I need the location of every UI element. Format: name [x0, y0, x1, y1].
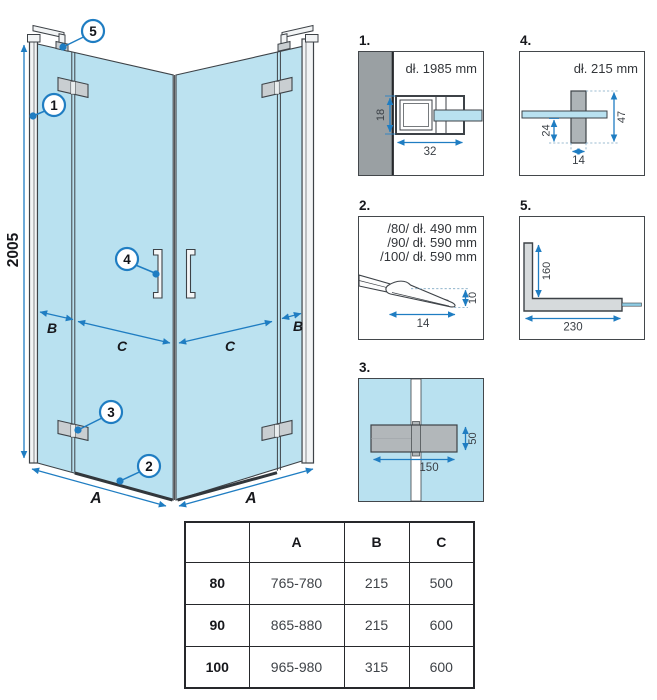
- callout-5-number: 5: [89, 24, 97, 39]
- detail-2-size-90: /90/ dł. 590 mm: [387, 235, 477, 250]
- shower-enclosure-diagram: 2005 B C C B A A: [0, 0, 350, 520]
- table-header-c: C: [409, 522, 474, 562]
- wall-profile-right: [302, 39, 314, 463]
- value-cell: 965-980: [249, 646, 344, 688]
- callout-1-number: 1: [50, 98, 58, 113]
- detail-4-dim-offset: 24: [541, 124, 553, 136]
- value-cell: 865-880: [249, 604, 344, 646]
- detail-3-box: 150 50: [358, 378, 484, 502]
- dim-a-right-label: A: [244, 490, 256, 507]
- detail-panel-4: 4. dł. 215 mm 47 24 14: [519, 33, 645, 176]
- detail-4-box: dł. 215 mm 47 24 14: [519, 51, 645, 176]
- value-cell: 600: [409, 646, 474, 688]
- table-header-row: A B C: [185, 522, 474, 562]
- size-table: A B C 80 765-780 215 500 90 865-880 215 …: [184, 521, 475, 689]
- detail-5-label: 5.: [519, 198, 645, 216]
- detail-3-dim-height: 50: [467, 432, 479, 444]
- detail-1-label: 1.: [358, 33, 484, 51]
- size-cell: 90: [185, 604, 249, 646]
- detail-5-dim-horizontal: 230: [563, 322, 582, 334]
- callout-3-number: 3: [107, 405, 115, 420]
- detail-5-dim-vertical: 160: [541, 262, 553, 280]
- detail-2-label: 2.: [358, 198, 484, 216]
- detail-4-dim-width: 14: [572, 155, 585, 167]
- dim-height: 2005: [5, 45, 24, 458]
- detail-3-dim-width: 150: [419, 462, 438, 474]
- detail-2-dim-height: 10: [467, 292, 479, 304]
- detail-2-size-100: /100/ dł. 590 mm: [380, 249, 477, 264]
- glass-edge: [622, 303, 642, 306]
- callout-5: 5: [59, 20, 104, 51]
- detail-2-dim-width: 14: [417, 318, 430, 330]
- dim-c-right-label: C: [225, 338, 236, 354]
- detail-3-label: 3.: [358, 360, 484, 378]
- detail-4-title: dł. 215 mm: [574, 61, 638, 76]
- glass-holder-drawing: dł. 215 mm 47 24 14: [520, 52, 644, 175]
- detail-2-size-80: /80/ dł. 490 mm: [387, 221, 477, 236]
- table-row: 90 865-880 215 600: [185, 604, 474, 646]
- detail-4-dim-height: 47: [616, 111, 628, 123]
- table-header-size: [185, 522, 249, 562]
- value-cell: 215: [344, 604, 409, 646]
- value-cell: 765-780: [249, 562, 344, 604]
- detail-1-title: dł. 1985 mm: [405, 61, 477, 76]
- detail-panel-3: 3. 150 50: [358, 360, 484, 502]
- seal-lip: [386, 281, 455, 307]
- glass-section: [434, 110, 482, 121]
- detail-1-box: dł. 1985 mm 18 32: [358, 51, 484, 176]
- dim-a-left-label: A: [89, 490, 101, 507]
- callout-2-number: 2: [145, 459, 153, 474]
- hinge-detail-drawing: 150 50: [359, 379, 483, 501]
- seal-profile-drawing: /80/ dł. 490 mm /90/ dł. 590 mm /100/ dł…: [359, 217, 483, 339]
- size-cell: 100: [185, 646, 249, 688]
- detail-panel-2: 2. /80/ dł. 490 mm /90/ dł. 590 mm /100/…: [358, 198, 484, 340]
- corner-bracket-drawing: 160 230: [520, 217, 644, 339]
- value-cell: 315: [344, 646, 409, 688]
- detail-panel-5: 5. 160 230: [519, 198, 645, 340]
- detail-1-dim-width: 32: [424, 146, 437, 158]
- glass-section: [522, 111, 607, 118]
- detail-2-box: /80/ dł. 490 mm /90/ dł. 590 mm /100/ dł…: [358, 216, 484, 340]
- value-cell: 600: [409, 604, 474, 646]
- table-header-a: A: [249, 522, 344, 562]
- table-row: 100 965-980 315 600: [185, 646, 474, 688]
- table-row: 80 765-780 215 500: [185, 562, 474, 604]
- dim-height-label: 2005: [5, 232, 22, 267]
- wall-profile-section-drawing: dł. 1985 mm 18 32: [359, 52, 483, 175]
- size-cell: 80: [185, 562, 249, 604]
- table-header-b: B: [344, 522, 409, 562]
- value-cell: 215: [344, 562, 409, 604]
- callout-4-number: 4: [123, 252, 131, 267]
- dim-c-left-label: C: [117, 338, 128, 354]
- detail-4-label: 4.: [519, 33, 645, 51]
- detail-5-box: 160 230: [519, 216, 645, 340]
- value-cell: 500: [409, 562, 474, 604]
- detail-1-dim-height: 18: [375, 109, 387, 121]
- wall-profile-left: [30, 39, 38, 463]
- product-technical-sheet: 2005 B C C B A A: [0, 0, 657, 700]
- detail-panel-1: 1. dł. 1985 mm 18 32: [358, 33, 484, 176]
- dim-b-left-label: B: [47, 320, 57, 336]
- dim-b-right-label: B: [293, 318, 303, 334]
